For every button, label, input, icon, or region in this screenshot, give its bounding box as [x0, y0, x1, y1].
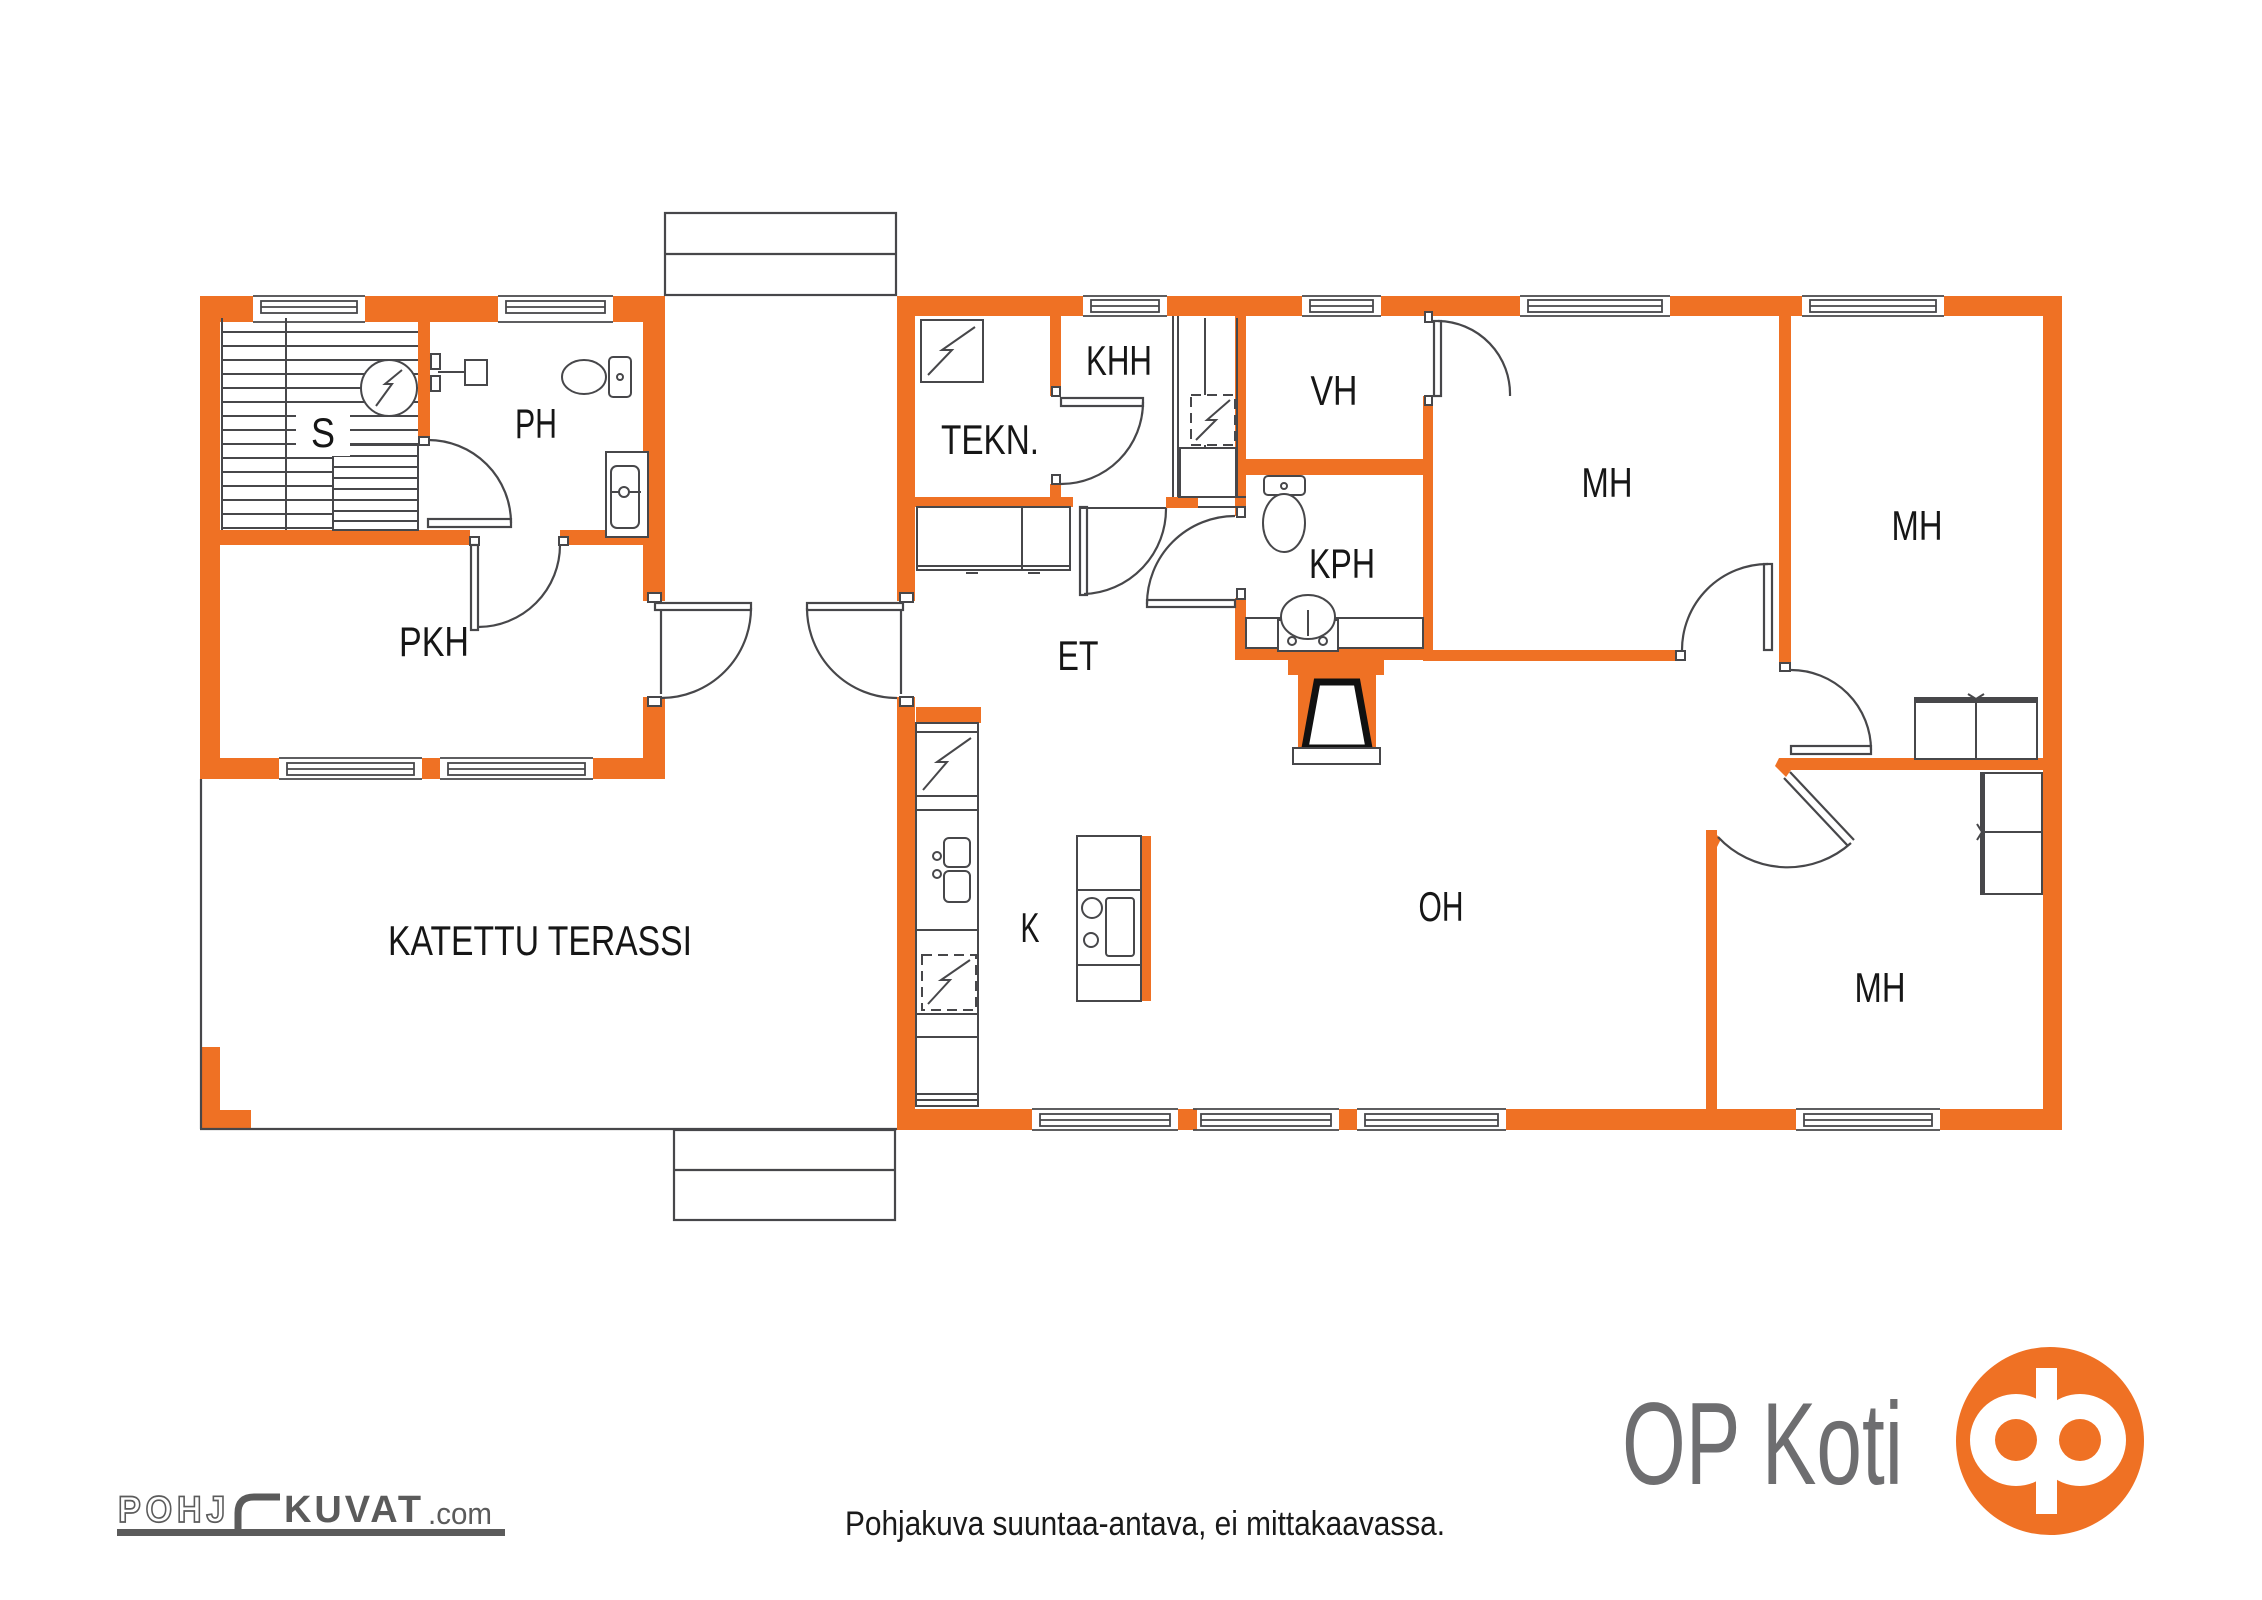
svg-text:KATETTU TERASSI: KATETTU TERASSI: [388, 917, 692, 964]
svg-text:.com: .com: [428, 1496, 492, 1531]
svg-text:MH: MH: [1582, 459, 1633, 506]
svg-text:KPH: KPH: [1309, 540, 1375, 587]
svg-text:S: S: [311, 409, 335, 456]
svg-text:ET: ET: [1058, 632, 1099, 679]
svg-text:VH: VH: [1311, 367, 1358, 414]
svg-text:OP Koti: OP Koti: [1622, 1378, 1903, 1509]
svg-text:KUVAT: KUVAT: [284, 1489, 424, 1531]
svg-text:KHH: KHH: [1086, 337, 1152, 384]
svg-text:PH: PH: [515, 400, 557, 447]
svg-text:MH: MH: [1855, 964, 1906, 1011]
svg-text:Pohjakuva suuntaa-antava, ei m: Pohjakuva suuntaa-antava, ei mittakaavas…: [845, 1505, 1445, 1543]
svg-text:OH: OH: [1419, 883, 1464, 930]
svg-text:K: K: [1021, 904, 1040, 951]
svg-text:PKH: PKH: [399, 618, 469, 665]
svg-text:POHJ: POHJ: [118, 1489, 230, 1530]
svg-text:TEKN.: TEKN.: [941, 416, 1039, 463]
svg-text:MH: MH: [1892, 502, 1943, 549]
